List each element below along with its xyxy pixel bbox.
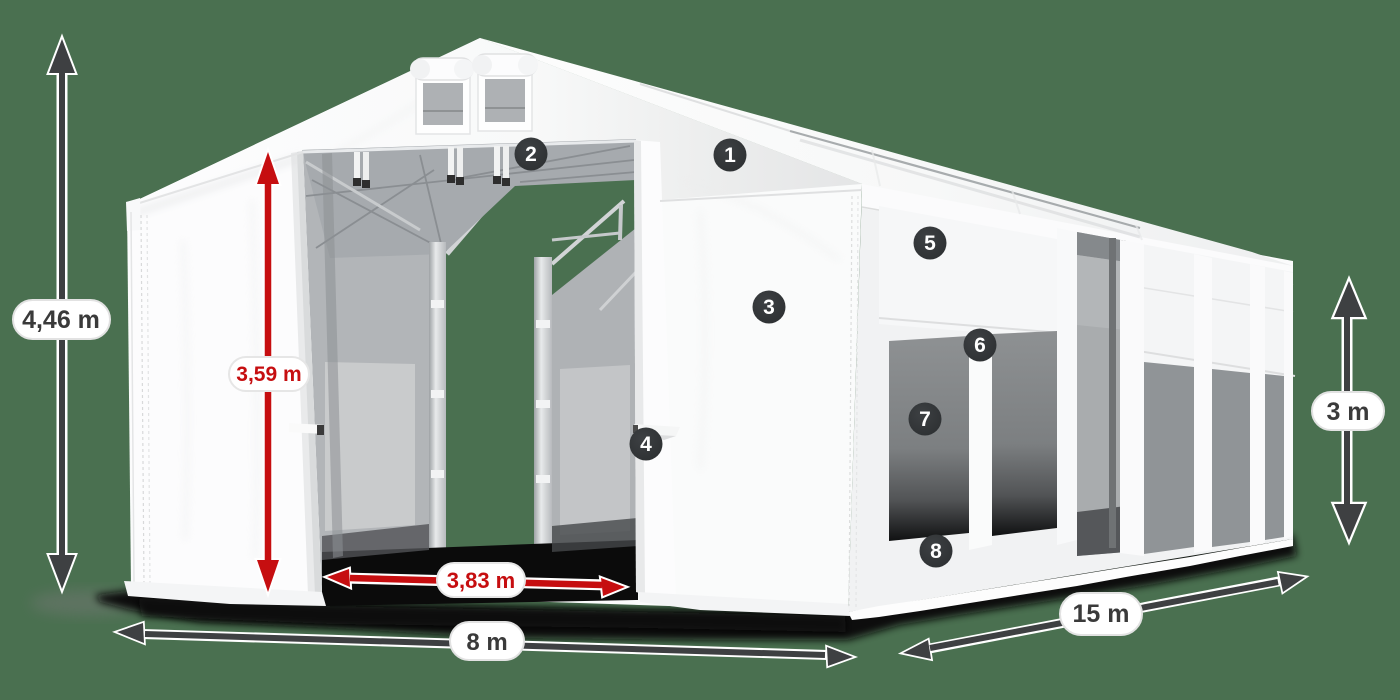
svg-text:8: 8	[930, 540, 942, 563]
svg-text:1: 1	[724, 144, 736, 167]
svg-text:3 m: 3 m	[1326, 398, 1369, 426]
svg-text:2: 2	[525, 143, 537, 166]
svg-text:8 m: 8 m	[466, 629, 507, 656]
svg-text:3,59 m: 3,59 m	[236, 363, 301, 386]
svg-text:4: 4	[640, 433, 652, 456]
svg-text:15 m: 15 m	[1073, 600, 1130, 628]
svg-text:3,83 m: 3,83 m	[447, 568, 516, 593]
svg-text:3: 3	[763, 296, 775, 319]
svg-text:6: 6	[974, 334, 986, 357]
svg-text:7: 7	[919, 408, 931, 431]
svg-text:4,46 m: 4,46 m	[22, 306, 100, 334]
svg-text:5: 5	[924, 232, 936, 255]
